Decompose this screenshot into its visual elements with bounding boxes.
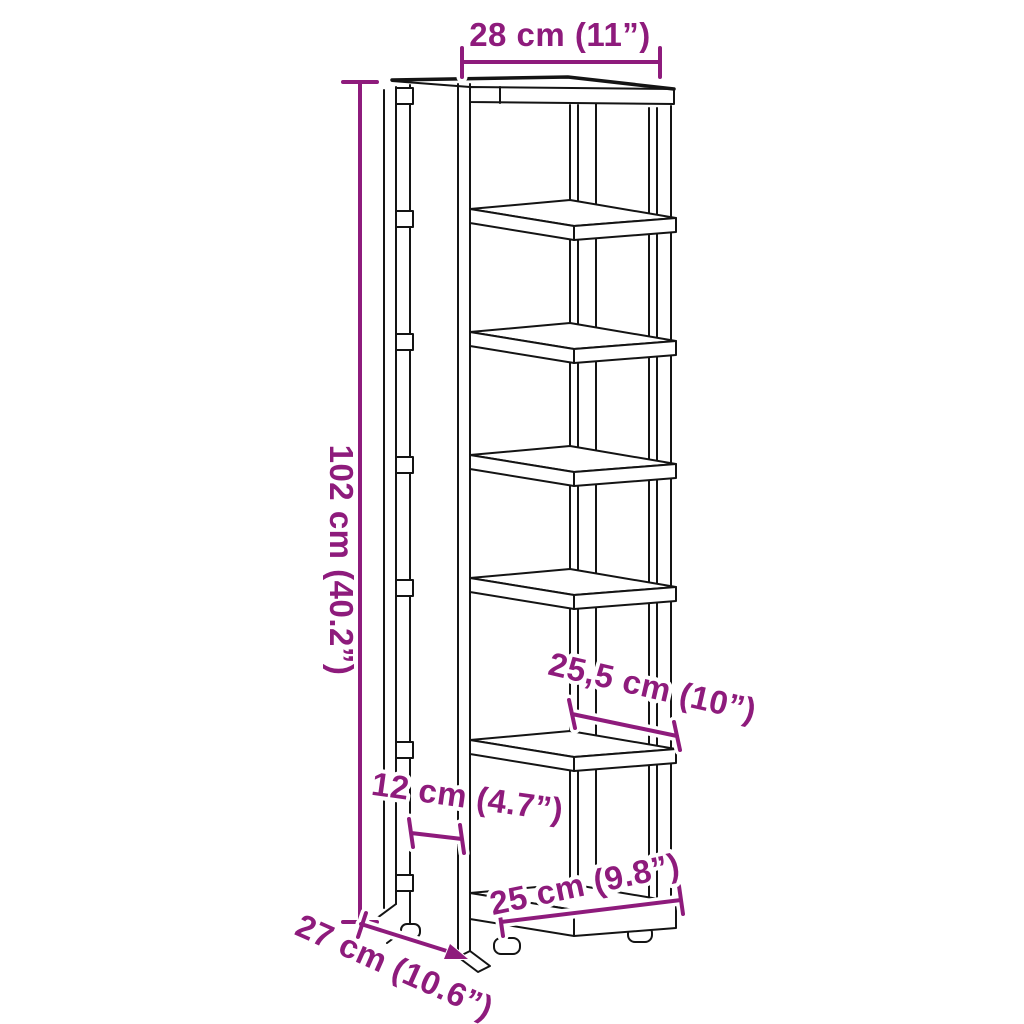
top-board <box>392 77 674 104</box>
dimension-label-height: 102 cm (40.2”) <box>323 445 360 676</box>
shelf <box>470 446 676 486</box>
shelf <box>470 200 676 240</box>
dimension-label-side-gap: 12 cm (4.7”) <box>369 765 565 829</box>
dimension-label-top-width: 28 cm (11”) <box>469 16 651 53</box>
shelves <box>470 200 676 936</box>
product-image: 28 cm (11”) 102 cm (40.2”) 25,5 cm (10”)… <box>0 0 1024 1024</box>
dimension-annotations: 28 cm (11”) 102 cm (40.2”) 25,5 cm (10”)… <box>290 16 760 1024</box>
foot-left <box>494 938 520 954</box>
dimension-side-gap: 12 cm (4.7”) <box>369 765 565 853</box>
shelf <box>470 731 676 771</box>
dimension-height: 102 cm (40.2”) <box>323 82 377 922</box>
shoe-rack-dimension-diagram: 28 cm (11”) 102 cm (40.2”) 25,5 cm (10”)… <box>0 0 1024 1024</box>
dimension-top-width: 28 cm (11”) <box>462 16 660 77</box>
shelf <box>470 569 676 609</box>
shelf <box>470 323 676 363</box>
